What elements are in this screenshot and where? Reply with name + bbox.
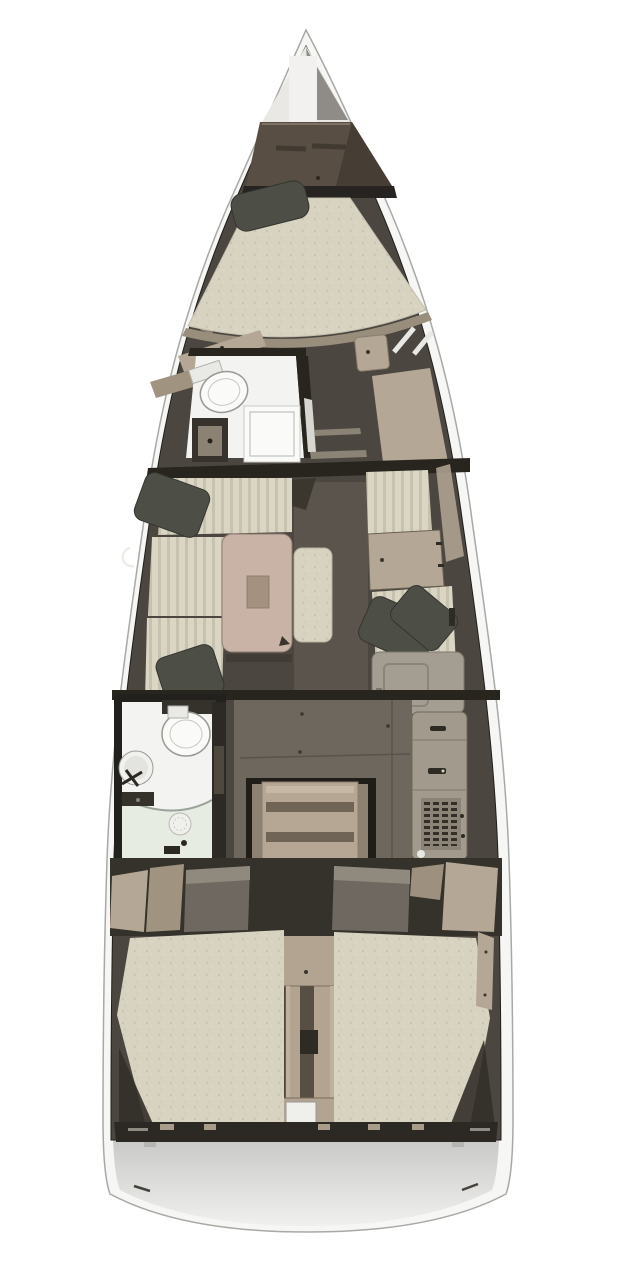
stern-tab	[204, 1124, 216, 1130]
galley: Galley unit with refrigerator vent	[412, 712, 467, 860]
aft-toilet-tank	[168, 706, 188, 718]
drawer-handle	[430, 726, 446, 731]
locker-latch	[316, 176, 320, 180]
vent-screw	[460, 814, 464, 818]
latch	[436, 542, 442, 545]
port-berth-trim	[146, 864, 184, 932]
aft-head-door	[214, 746, 224, 794]
starboard-aft-berth: Starboard aft cabin berth	[334, 932, 495, 1126]
port-berth-mattress	[117, 930, 284, 1126]
starboard-settee: Starboard settee and chart table	[355, 464, 464, 714]
anchor-locker: Anchor locker	[241, 46, 397, 198]
shower-pan	[244, 406, 300, 462]
shower-drain	[169, 813, 191, 835]
wardrobe-knob	[366, 350, 370, 354]
saloon-table-group: Saloon table	[222, 534, 292, 662]
stbd-berth-trim	[442, 862, 498, 932]
settee-cushion	[148, 537, 228, 616]
table-shadow	[226, 654, 292, 662]
stern-tab	[368, 1124, 380, 1130]
latch	[438, 564, 444, 567]
mixer-knob	[181, 840, 187, 846]
handle-dot	[442, 770, 445, 773]
chart-table	[368, 530, 444, 590]
locker-knob	[417, 850, 425, 858]
stbd-hull-trim	[476, 932, 494, 1010]
step-tread	[266, 832, 354, 842]
vent-screw	[461, 834, 465, 838]
stern-tab	[470, 1128, 490, 1131]
bench-cushion	[294, 548, 332, 642]
fridge-vent-grille	[424, 802, 458, 846]
table-inset	[247, 576, 269, 608]
wardrobe-door	[354, 334, 389, 371]
shower-mixer	[164, 846, 180, 854]
settee-cushion	[366, 470, 432, 534]
transom-notch	[452, 1142, 464, 1147]
forward-head: Forward head with toilet and shower	[186, 348, 316, 462]
transom-notch	[144, 1142, 156, 1147]
hatch-screw	[304, 970, 308, 974]
bow-column	[289, 56, 317, 122]
aft-bulkhead-zone	[110, 858, 502, 936]
locker-slot	[276, 145, 306, 151]
stern-tab	[128, 1128, 148, 1131]
cup-holder	[123, 548, 134, 566]
step-tread	[266, 802, 354, 812]
column-edge	[330, 986, 334, 1098]
center-bench: Center bench seat	[294, 548, 332, 642]
floor-dot	[300, 712, 304, 716]
stbd-berth-trim	[410, 864, 444, 900]
stern-tab	[318, 1124, 330, 1130]
stern-tab	[160, 1124, 174, 1130]
floor-dot	[386, 724, 390, 728]
column-edge	[286, 986, 290, 1098]
column-hatch	[300, 1030, 318, 1054]
port-berth-trim	[110, 870, 148, 932]
trim-screw	[485, 951, 488, 954]
aft-toilet	[162, 712, 210, 756]
boat-floor-plan-page: Hull Anchor locker Forward cabin V-berth…	[0, 0, 626, 1280]
floor-dot	[298, 750, 302, 754]
handle-mark	[449, 608, 455, 626]
stern-tab	[412, 1124, 424, 1130]
sink-drain	[208, 439, 213, 444]
counter-knob	[136, 798, 140, 802]
aft-head: Aft head with sink, toilet and shower	[114, 694, 226, 870]
port-aft-berth: Port aft cabin berth	[117, 930, 284, 1126]
chart-table-knob	[380, 558, 384, 562]
head-top-wall	[188, 348, 306, 356]
boat-floor-plan: Hull Anchor locker Forward cabin V-berth…	[0, 0, 626, 1280]
ladder-top-edge	[266, 786, 354, 793]
trim-screw	[484, 994, 487, 997]
